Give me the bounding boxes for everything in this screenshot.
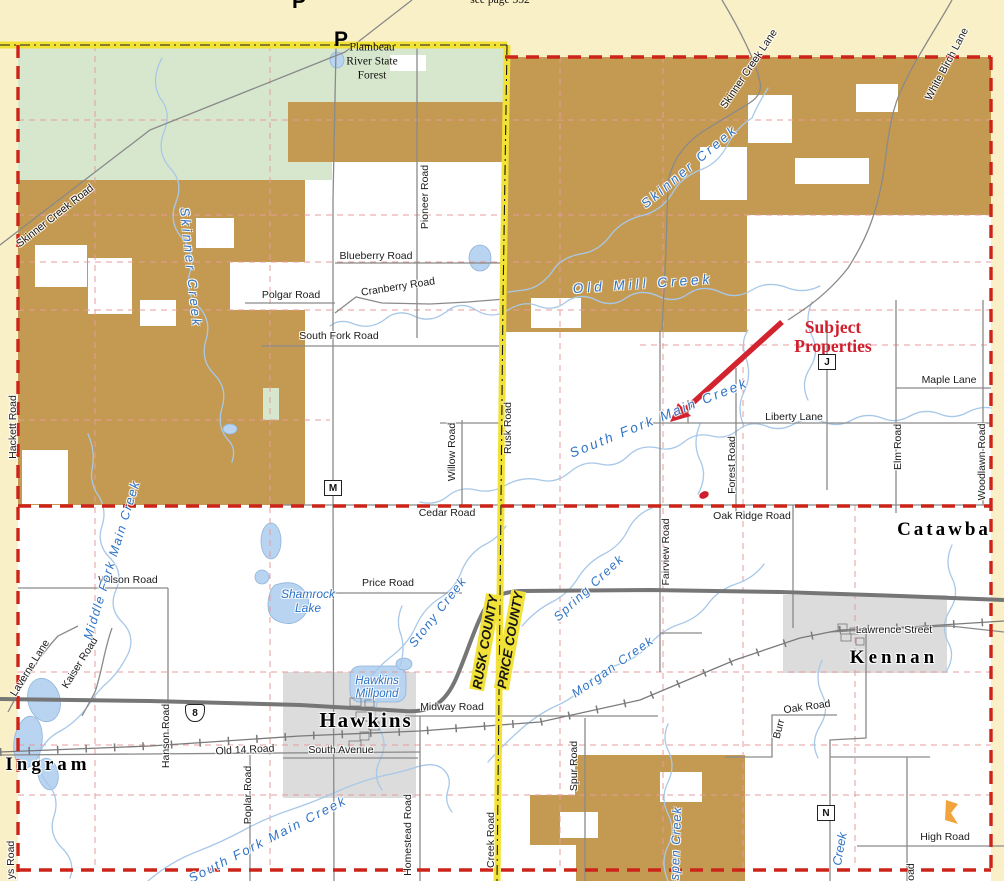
morgan-creek-label: Morgan Creek	[569, 633, 657, 701]
middle-fork-main-creek-label: Middle Fork Main Creek	[81, 479, 143, 642]
laverne-lane-label: Laverne Lane	[8, 638, 52, 699]
lawrence-street-label: Lawrence Street	[856, 624, 932, 636]
county-road-j-marker: J	[818, 354, 836, 370]
rusk-road-label: Rusk Road	[502, 402, 514, 454]
hackett-road-label: Hackett Road	[7, 395, 19, 459]
hawkins-millpond-label: Hawkins Millpond	[355, 675, 398, 701]
stony-creek-label: Stony Creek	[406, 574, 470, 650]
p-marker: P	[334, 28, 348, 52]
south-fork-main-creek-label-lower: South Fork Main Creek	[186, 793, 349, 881]
county-road-m-marker: M	[324, 480, 342, 496]
flambeau-forest-label: Flambeau River State Forest	[346, 41, 397, 82]
cranberry-road-label: Cranberry Road	[360, 275, 436, 299]
old-mill-creek-label: Old Mill Creek	[572, 271, 714, 296]
spur-road-label: Spur Road	[568, 741, 580, 791]
kaiser-road-label: Kaiser Road	[60, 635, 101, 690]
south-avenue-label: South Avenue	[308, 744, 373, 756]
subject-properties-note: Subject Properties	[794, 318, 871, 357]
partial-road-label: oad	[905, 863, 917, 881]
south-fork-road-label: South Fork Road	[299, 330, 378, 342]
us-8-shield: 8	[185, 704, 205, 722]
skinner-creek-label-east: Skinner Creek	[639, 122, 742, 211]
creek-partial-label: Creek	[830, 831, 850, 866]
maple-lane-label: Maple Lane	[922, 374, 977, 386]
high-road-label: High Road	[920, 831, 970, 843]
elm-road-label: Elm Road	[892, 424, 904, 470]
homestead-road-label: Homestead Road	[402, 794, 414, 876]
woodlawn-road-label: Woodlawn Road	[976, 424, 988, 501]
town-hawkins: Hawkins	[319, 708, 412, 732]
creek-road-label: Creek Road	[485, 812, 497, 868]
county-road-n-marker: N	[817, 805, 835, 821]
liberty-lane-label: Liberty Lane	[765, 411, 823, 423]
map-labels: see page 352Flambeau River State ForestS…	[0, 0, 1004, 881]
burr-oak-road-label: Oak Road	[783, 698, 831, 716]
pioneer-road-label: Pioneer Road	[419, 165, 431, 229]
burr-oak-road-label-2: Burr	[771, 718, 788, 740]
county-plat-map: see page 352Flambeau River State ForestS…	[0, 0, 1004, 881]
spring-creek-label: Spring Creek	[551, 552, 627, 625]
polgar-road-label: Polgar Road	[262, 289, 320, 301]
cedar-road-label: Cedar Road	[419, 507, 476, 519]
fairview-road-label: Fairview Road	[660, 518, 672, 585]
price-road-label: Price Road	[362, 577, 414, 589]
hanson-road-label: Hanson Road	[160, 704, 172, 768]
town-kennan: Kennan	[850, 647, 938, 669]
skinner-creek-lane-label: Skinner Creek Lane	[718, 27, 780, 111]
see-page-note: see page 352	[470, 0, 529, 8]
skinner-creek-road-label: Skinner Creek Road	[14, 182, 96, 250]
old-14-road-label: Old 14 Road	[215, 742, 275, 757]
willow-road-label: Willow Road	[446, 423, 458, 481]
p-marker-top: P	[292, 0, 306, 14]
ys-road-label: ys Road	[5, 841, 17, 880]
poplar-road-label: Poplar Road	[242, 766, 254, 824]
aspen-creek-label: Aspen Creek	[667, 806, 684, 881]
shamrock-lake-label: Shamrock Lake	[281, 588, 335, 616]
forest-road-label: Forest Road	[726, 436, 738, 494]
oak-ridge-road-label: Oak Ridge Road	[713, 510, 791, 522]
blueberry-road-label: Blueberry Road	[340, 250, 413, 262]
white-birch-lane-label: White Birch Lane	[923, 26, 971, 102]
town-ingram: Ingram	[5, 754, 90, 776]
south-fork-main-creek-label: South Fork Main Creek	[567, 375, 750, 461]
midway-road-label: Midway Road	[420, 701, 484, 713]
town-catawba: Catawba	[897, 519, 991, 541]
skinner-creek-label-west: Skinner Creek	[176, 207, 204, 329]
